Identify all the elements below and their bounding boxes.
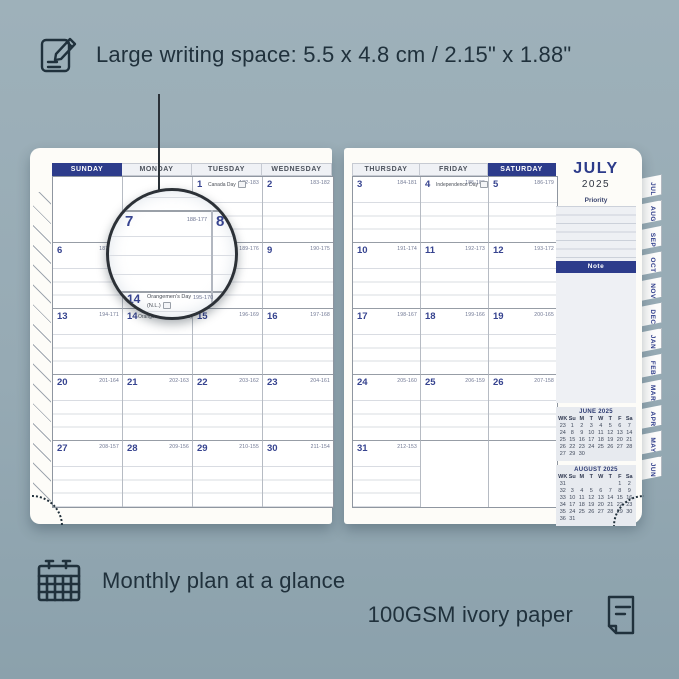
writing-lines — [353, 388, 420, 440]
mini-day: 25 — [577, 509, 587, 516]
calendar-day-cell: 4185-180Independence Day — [421, 177, 489, 243]
mini-day — [596, 516, 606, 523]
calendar-day-cell: 20201-164 — [53, 375, 123, 441]
writing-lines — [263, 256, 333, 308]
day-of-year-count: 204-161 — [310, 378, 330, 384]
feature-callout-paper: 100GSM ivory paper — [368, 592, 643, 638]
mini-col-header: Su — [568, 474, 578, 481]
feature-callout-writing-space: Large writing space: 5.5 x 4.8 cm / 2.15… — [36, 32, 571, 78]
mini-col-header: W — [596, 416, 606, 423]
mini-day — [587, 481, 597, 488]
writing-lines — [421, 256, 488, 308]
mini-day: 10 — [568, 495, 578, 502]
date-number: 11 — [425, 245, 435, 256]
date-number: 6 — [57, 245, 62, 256]
date-number: 16 — [267, 311, 278, 322]
writing-lines — [123, 388, 192, 440]
mini-day: 13 — [596, 495, 606, 502]
mini-day: 17 — [587, 437, 597, 444]
mini-col-header: W — [596, 474, 606, 481]
writing-lines — [353, 256, 420, 308]
mini-col-header: WK — [558, 474, 568, 481]
date-number: 23 — [267, 377, 278, 388]
magnified-calendar-detail: 7 188-177 8 14 Orangemen's Day (N.L.) 19… — [109, 191, 235, 317]
planner-right-page: THURSDAY FRIDAY SATURDAY 3184-1814185-18… — [344, 148, 642, 524]
day-of-year-count: 193-172 — [534, 246, 554, 252]
mini-day: 36 — [558, 516, 568, 523]
calendar-day-cell: 12193-172 — [489, 243, 557, 309]
day-of-year-count: 194-171 — [99, 312, 119, 318]
mini-day: 23 — [577, 444, 587, 451]
calendar-day-cell: 13194-171 — [53, 309, 123, 375]
mini-day: 31 — [568, 516, 578, 523]
writing-lines — [123, 322, 192, 374]
mini-day: 19 — [587, 502, 597, 509]
calendar-grid-icon — [34, 556, 84, 606]
writing-lines — [353, 454, 420, 507]
mini-day: 29 — [568, 451, 578, 458]
mini-day: 26 — [587, 509, 597, 516]
calendar-blank-cell — [489, 441, 557, 507]
date-number: 2 — [267, 179, 272, 190]
mini-calendar: JUNE 2025WKSuMTWTFSa23123456724891011121… — [556, 407, 636, 461]
month-tab-label: OCT — [649, 258, 656, 273]
calendar-day-cell: 22203-162 — [193, 375, 263, 441]
mini-day — [587, 451, 597, 458]
month-tab-label: MAR — [649, 385, 656, 401]
mini-calendar-grid: WKSuMTWTFSa23123456724891011121314251516… — [558, 416, 634, 458]
date-number: 20 — [57, 377, 68, 388]
magnified-holiday-region: (N.L.) — [147, 302, 171, 309]
writing-lines — [53, 388, 122, 440]
mini-col-header: Su — [568, 416, 578, 423]
mini-day: 13 — [615, 430, 625, 437]
writing-lines — [263, 454, 333, 507]
date-number: 9 — [267, 245, 272, 256]
day-of-year-count: 189-176 — [239, 246, 259, 252]
day-of-year-count: 212-153 — [397, 444, 417, 450]
month-tab-label: NOV — [649, 283, 656, 299]
mini-day: 31 — [558, 481, 568, 488]
magnifier-circle: 7 188-177 8 14 Orangemen's Day (N.L.) 19… — [106, 188, 238, 320]
mini-day: 11 — [577, 495, 587, 502]
magnified-holiday-label: Orangemen's Day — [147, 294, 191, 300]
mini-day: 23 — [558, 423, 568, 430]
calendar-day-cell: 17198-167 — [353, 309, 421, 375]
feature-text-monthly-plan: Monthly plan at a glance — [102, 568, 345, 594]
weekday-header-friday: FRIDAY — [420, 163, 488, 176]
weekday-header-wednesday: WEDNESDAY — [262, 163, 332, 176]
calendar-day-cell: 3184-181 — [353, 177, 421, 243]
writing-lines — [123, 454, 192, 507]
writing-lines — [53, 454, 122, 507]
mini-day: 19 — [606, 437, 616, 444]
day-of-year-count: 191-174 — [397, 246, 417, 252]
date-number: 26 — [493, 377, 504, 388]
calendar-blank-cell — [421, 441, 489, 507]
mini-day: 18 — [596, 437, 606, 444]
mini-day: 25 — [596, 444, 606, 451]
weekday-header-saturday: SATURDAY — [488, 163, 556, 176]
day-of-year-count: 208-157 — [99, 444, 119, 450]
day-of-year-count: 211-154 — [311, 444, 330, 450]
mini-day: 27 — [615, 444, 625, 451]
mini-day — [606, 451, 616, 458]
calendar-day-cell: 15196-169 — [193, 309, 263, 375]
mini-day: 20 — [596, 502, 606, 509]
date-number: 24 — [357, 377, 368, 388]
writing-lines — [193, 388, 262, 440]
day-of-year-count: 201-164 — [99, 378, 119, 384]
day-of-year-count: 184-181 — [397, 180, 417, 186]
date-number: 1 — [197, 179, 202, 190]
calendar-day-cell: 9190-175 — [263, 243, 333, 309]
calendar-day-cell: 2183-182 — [263, 177, 333, 243]
month-tab-label: FEB — [649, 360, 656, 375]
mini-day: 3 — [568, 488, 578, 495]
mini-day: 12 — [606, 430, 616, 437]
mini-day — [625, 451, 635, 458]
mini-day: 27 — [558, 451, 568, 458]
calendar-day-cell: 28209-156 — [123, 441, 193, 507]
mini-day: 18 — [577, 502, 587, 509]
mini-day: 6 — [596, 488, 606, 495]
feature-text-writing-space: Large writing space: 5.5 x 4.8 cm / 2.15… — [96, 42, 571, 68]
date-number: 5 — [493, 179, 498, 190]
mini-col-header: Sa — [625, 416, 635, 423]
mini-day: 26 — [606, 444, 616, 451]
writing-lines — [489, 256, 557, 308]
mini-day: 15 — [615, 495, 625, 502]
day-of-year-count: 196-169 — [239, 312, 259, 318]
mini-day — [615, 451, 625, 458]
writing-lines — [489, 190, 557, 242]
date-number: 22 — [197, 377, 208, 388]
mini-col-header: Sa — [625, 474, 635, 481]
writing-lines — [489, 388, 557, 440]
date-number: 30 — [267, 443, 278, 454]
mini-day: 28 — [625, 444, 635, 451]
day-of-year-count: 199-166 — [465, 312, 485, 318]
weekday-header-thursday: THURSDAY — [352, 163, 420, 176]
weekday-header-tuesday: TUESDAY — [192, 163, 262, 176]
mini-day: 17 — [568, 502, 578, 509]
magnified-date-14: 14 — [127, 292, 140, 306]
month-tab-label: JUN — [649, 463, 656, 478]
holiday-icon — [163, 302, 171, 309]
writing-lines — [353, 190, 420, 242]
mini-day — [577, 481, 587, 488]
date-number: 18 — [425, 311, 436, 322]
holiday-label: Canada Day — [208, 181, 246, 188]
writing-lines — [53, 322, 122, 374]
mini-day: 32 — [558, 488, 568, 495]
mini-col-header: M — [577, 416, 587, 423]
mini-day: 15 — [568, 437, 578, 444]
day-of-year-count: 202-163 — [169, 378, 189, 384]
date-number: 25 — [425, 377, 436, 388]
calendar-day-cell: 24205-160 — [353, 375, 421, 441]
mini-day: 24 — [568, 509, 578, 516]
writing-lines — [353, 322, 420, 374]
holiday-icon — [238, 181, 246, 188]
calendar-day-cell: 16197-168 — [263, 309, 333, 375]
writing-lines — [193, 454, 262, 507]
feature-text-paper: 100GSM ivory paper — [368, 602, 573, 628]
mini-day: 27 — [596, 509, 606, 516]
mini-col-header: F — [615, 416, 625, 423]
mini-day: 21 — [606, 502, 616, 509]
calendar-day-cell: 30211-154 — [263, 441, 333, 507]
day-of-year-count: 186-179 — [534, 180, 554, 186]
month-tab-label: MAY — [649, 437, 656, 452]
mini-day: 25 — [558, 437, 568, 444]
month-tab-label: AUG — [649, 206, 656, 222]
priority-label: Priority — [556, 197, 636, 206]
date-number: 31 — [357, 443, 368, 454]
calendar-day-cell: 29210-155 — [193, 441, 263, 507]
weekday-header-monday: MONDAY — [122, 163, 192, 176]
mini-col-header: T — [606, 416, 616, 423]
date-number: 28 — [127, 443, 138, 454]
mini-day: 14 — [606, 495, 616, 502]
month-title: JULY — [556, 160, 636, 178]
mini-day — [596, 451, 606, 458]
month-tab-label: DEC — [649, 309, 656, 324]
calendar-day-cell: 18199-166 — [421, 309, 489, 375]
date-number: 19 — [493, 311, 504, 322]
day-of-year-count: 197-168 — [310, 312, 330, 318]
mini-day: 7 — [625, 423, 635, 430]
mini-day: 12 — [587, 495, 597, 502]
writing-lines — [263, 388, 333, 440]
sidebar: JULY 2025 Priority Note JUNE 2025WKSuMTW… — [556, 154, 636, 506]
mini-day: 16 — [577, 437, 587, 444]
calendar-day-cell: 10191-174 — [353, 243, 421, 309]
date-number: 4 — [425, 179, 430, 190]
mini-day: 1 — [568, 423, 578, 430]
calendar-grid-right: 3184-1814185-180Independence Day5186-179… — [352, 176, 558, 508]
month-tab-label: APR — [649, 411, 656, 426]
mini-day: 26 — [558, 444, 568, 451]
calendar-day-cell: 27208-157 — [53, 441, 123, 507]
writing-lines — [421, 388, 488, 440]
calendar-day-cell: 26207-158 — [489, 375, 557, 441]
mini-day: 24 — [587, 444, 597, 451]
magnified-day-count-7: 188-177 — [165, 217, 207, 223]
mini-day — [596, 481, 606, 488]
day-of-year-count: 209-156 — [169, 444, 189, 450]
feature-callout-monthly-plan: Monthly plan at a glance — [34, 556, 345, 606]
mini-day: 21 — [625, 437, 635, 444]
mini-day: 22 — [568, 444, 578, 451]
mini-col-header: T — [587, 416, 597, 423]
day-of-year-count: 183-182 — [310, 180, 330, 186]
mini-day: 30 — [577, 451, 587, 458]
mini-day: 28 — [606, 509, 616, 516]
mini-day: 5 — [606, 423, 616, 430]
mini-day: 11 — [596, 430, 606, 437]
mini-day — [606, 481, 616, 488]
day-of-year-count: 210-155 — [239, 444, 259, 450]
mini-col-header: T — [587, 474, 597, 481]
date-number: 29 — [197, 443, 208, 454]
mini-day: 4 — [577, 488, 587, 495]
date-number: 21 — [127, 377, 138, 388]
calendar-day-cell: 31212-153 — [353, 441, 421, 507]
mini-day: 9 — [577, 430, 587, 437]
day-of-year-count: 205-160 — [397, 378, 417, 384]
day-of-year-count: 206-159 — [465, 378, 485, 384]
date-number: 10 — [357, 245, 368, 256]
calendar-day-cell: 23204-161 — [263, 375, 333, 441]
mini-day: 7 — [606, 488, 616, 495]
mini-day: 9 — [625, 488, 635, 495]
note-banner: Note — [556, 261, 636, 273]
holiday-region-text: (N.L.) — [147, 303, 161, 309]
month-tab-label: JUL — [649, 182, 656, 196]
holiday-text: Independence Day — [436, 182, 478, 188]
note-area — [556, 273, 636, 403]
day-of-year-count: 207-158 — [534, 378, 554, 384]
mini-day: 1 — [615, 481, 625, 488]
mini-col-header: F — [615, 474, 625, 481]
mini-day: 33 — [558, 495, 568, 502]
date-number: 12 — [493, 245, 504, 256]
mini-col-header: M — [577, 474, 587, 481]
weekday-header-row-left: SUNDAY MONDAY TUESDAY WEDNESDAY — [52, 163, 332, 176]
mini-day: 8 — [615, 488, 625, 495]
mini-day: 24 — [558, 430, 568, 437]
mini-day — [577, 516, 587, 523]
magnified-date-8: 8 — [216, 213, 224, 230]
priority-ruled-lines — [556, 206, 636, 261]
calendar-day-cell: 5186-179 — [489, 177, 557, 243]
writing-lines — [421, 322, 488, 374]
holiday-text: Canada Day — [208, 182, 236, 188]
day-of-year-count: 203-162 — [239, 378, 259, 384]
mini-col-header: T — [606, 474, 616, 481]
weekday-header-row-right: THURSDAY FRIDAY SATURDAY — [352, 163, 556, 176]
mini-calendar-title: JUNE 2025 — [558, 409, 634, 415]
paper-icon — [597, 592, 643, 638]
weekday-header-sunday: SUNDAY — [52, 163, 122, 176]
calendar-day-cell: 21202-163 — [123, 375, 193, 441]
day-of-year-count: 190-175 — [310, 246, 330, 252]
writing-lines — [263, 322, 333, 374]
day-of-year-count: 200-165 — [534, 312, 554, 318]
date-number: 3 — [357, 179, 362, 190]
binding-edge-hatch — [33, 192, 51, 502]
holiday-icon — [480, 181, 488, 188]
mini-col-header: WK — [558, 416, 568, 423]
mini-day — [568, 481, 578, 488]
mini-day: 2 — [625, 481, 635, 488]
mini-day: 35 — [558, 509, 568, 516]
year-label: 2025 — [556, 179, 636, 190]
pencil-note-icon — [36, 32, 82, 78]
magnified-date-7: 7 — [125, 213, 133, 230]
writing-lines — [263, 190, 333, 242]
month-tab-label: SEP — [649, 232, 656, 247]
calendar-day-cell: 19200-165 — [489, 309, 557, 375]
mini-day: 8 — [568, 430, 578, 437]
mini-calendar-title: AUGUST 2025 — [558, 467, 634, 473]
date-number: 27 — [57, 443, 68, 454]
calendar-day-cell: 25206-159 — [421, 375, 489, 441]
mini-day: 6 — [615, 423, 625, 430]
calendar-day-cell: 11192-173 — [421, 243, 489, 309]
mini-day: 3 — [587, 423, 597, 430]
mini-day — [587, 516, 597, 523]
corner-dots-left — [1, 495, 63, 557]
day-of-year-count: 198-167 — [397, 312, 417, 318]
mini-day: 2 — [577, 423, 587, 430]
mini-day: 14 — [625, 430, 635, 437]
month-tab-label: JAN — [649, 335, 656, 350]
mini-day: 4 — [596, 423, 606, 430]
holiday-label: Independence Day — [436, 181, 488, 188]
day-of-year-count: 192-173 — [465, 246, 485, 252]
mini-day: 20 — [615, 437, 625, 444]
writing-lines — [421, 190, 488, 242]
mini-day: 10 — [587, 430, 597, 437]
magnified-day-count-14: 195-170 — [193, 295, 213, 301]
writing-lines — [489, 322, 557, 374]
writing-lines — [193, 322, 262, 374]
mini-day: 5 — [587, 488, 597, 495]
mini-day: 34 — [558, 502, 568, 509]
date-number: 17 — [357, 311, 368, 322]
planner-product-image: Large writing space: 5.5 x 4.8 cm / 2.15… — [0, 0, 679, 679]
date-number: 13 — [57, 311, 68, 322]
date-number: 14 — [127, 311, 138, 322]
callout-connector-line — [158, 94, 160, 190]
